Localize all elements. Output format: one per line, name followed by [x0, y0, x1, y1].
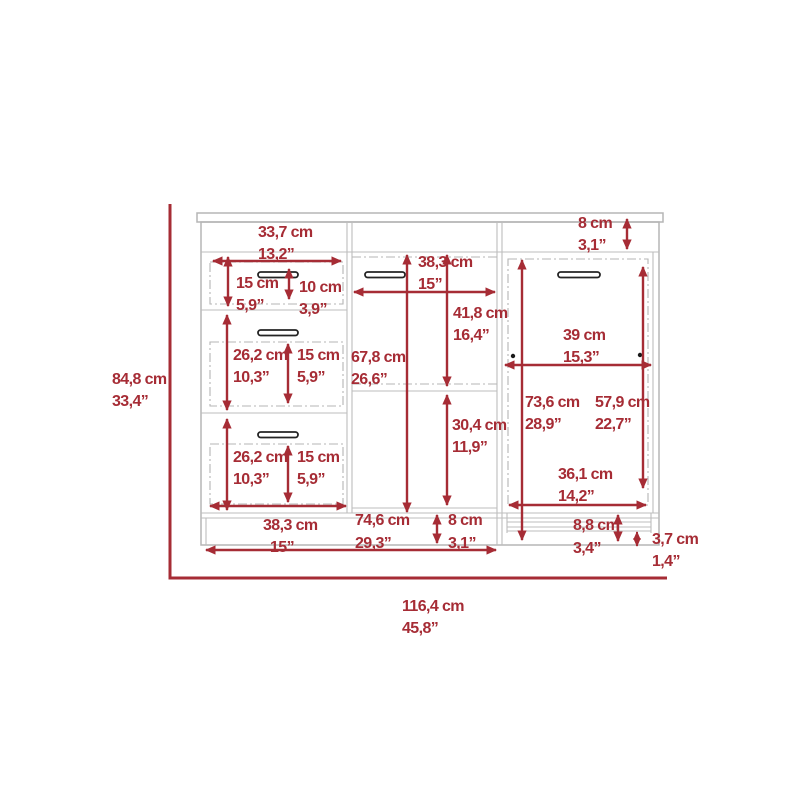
label-drawer2-inner-in: 5,9”: [297, 369, 325, 386]
label-drawer3-inner-cm: 15 cm: [297, 449, 340, 466]
diagram-svg: 33,7 cm 13,2” 8 cm 3,1” 15 cm 5,9” 10 cm…: [0, 0, 800, 800]
label-door-width-in: 15,3”: [563, 349, 599, 366]
label-overall-width-cm: 116,4 cm: [402, 598, 464, 615]
middle-drawer-handle: [365, 272, 405, 278]
label-drawer1-front-in: 5,9”: [236, 297, 264, 314]
label-left-column-width-cm: 38,3 cm: [263, 517, 318, 534]
label-middle-upper-opening-cm: 41,8 cm: [453, 305, 508, 322]
label-base-height-right-in: 3,4”: [573, 540, 601, 557]
label-overall-height-in: 33,4”: [112, 393, 148, 410]
label-middle-lower-opening-cm: 30,4 cm: [452, 417, 507, 434]
furniture-dimension-diagram: 33,7 cm 13,2” 8 cm 3,1” 15 cm 5,9” 10 cm…: [0, 0, 800, 800]
label-drawer2-inner-cm: 15 cm: [297, 347, 340, 364]
label-drawer2-front-in: 10,3”: [233, 369, 269, 386]
label-drawer1-inner-in: 3,9”: [299, 301, 327, 318]
label-middle-total-opening-cm: 67,8 cm: [351, 349, 406, 366]
label-door-panel-height-in: 22,7”: [595, 416, 631, 433]
label-left-middle-width-in: 29,3”: [355, 535, 391, 552]
label-door-opening-width-cm: 36,1 cm: [558, 466, 613, 483]
label-middle-total-opening-in: 26,6”: [351, 371, 387, 388]
label-kickplate-height-in: 1,4”: [652, 553, 680, 570]
label-door-total-height-cm: 73,6 cm: [525, 394, 580, 411]
label-top-width-in: 13,2”: [258, 246, 294, 263]
label-base-height-middle-in: 3,1”: [448, 535, 476, 552]
label-overall-width-in: 45,8”: [402, 620, 438, 637]
label-drawer3-front-cm: 26,2 cm: [233, 449, 288, 466]
label-door-width-cm: 39 cm: [563, 327, 606, 344]
label-top-rail-cm: 8 cm: [578, 215, 612, 232]
label-middle-lower-opening-in: 11,9”: [452, 439, 487, 456]
label-kickplate-height-cm: 3,7 cm: [652, 531, 699, 548]
dimension-labels: 33,7 cm 13,2” 8 cm 3,1” 15 cm 5,9” 10 cm…: [112, 215, 699, 637]
drawer2-handle: [258, 330, 298, 336]
drawer3-handle: [258, 432, 298, 438]
label-left-middle-width-cm: 74,6 cm: [355, 512, 410, 529]
label-door-total-height-in: 28,9”: [525, 416, 561, 433]
label-drawer3-front-in: 10,3”: [233, 471, 269, 488]
label-top-width-cm: 33,7 cm: [258, 224, 313, 241]
label-drawer2-front-cm: 26,2 cm: [233, 347, 288, 364]
label-top-rail-in: 3,1”: [578, 237, 606, 254]
label-base-height-middle-cm: 8 cm: [448, 512, 482, 529]
door-handle: [558, 272, 600, 278]
label-middle-column-width-in: 15”: [418, 276, 442, 293]
label-middle-column-width-cm: 38,3 cm: [418, 254, 473, 271]
label-overall-height-cm: 84,8 cm: [112, 371, 167, 388]
label-left-column-width-in: 15”: [270, 539, 294, 556]
label-base-height-right-cm: 8,8 cm: [573, 517, 620, 534]
label-drawer1-inner-cm: 10 cm: [299, 279, 342, 296]
label-door-opening-width-in: 14,2”: [558, 488, 594, 505]
door-pin-left: [511, 354, 515, 358]
label-middle-upper-opening-in: 16,4”: [453, 327, 489, 344]
door-pin-right: [638, 353, 642, 357]
label-drawer3-inner-in: 5,9”: [297, 471, 325, 488]
label-door-panel-height-cm: 57,9 cm: [595, 394, 650, 411]
label-drawer1-front-cm: 15 cm: [236, 275, 279, 292]
